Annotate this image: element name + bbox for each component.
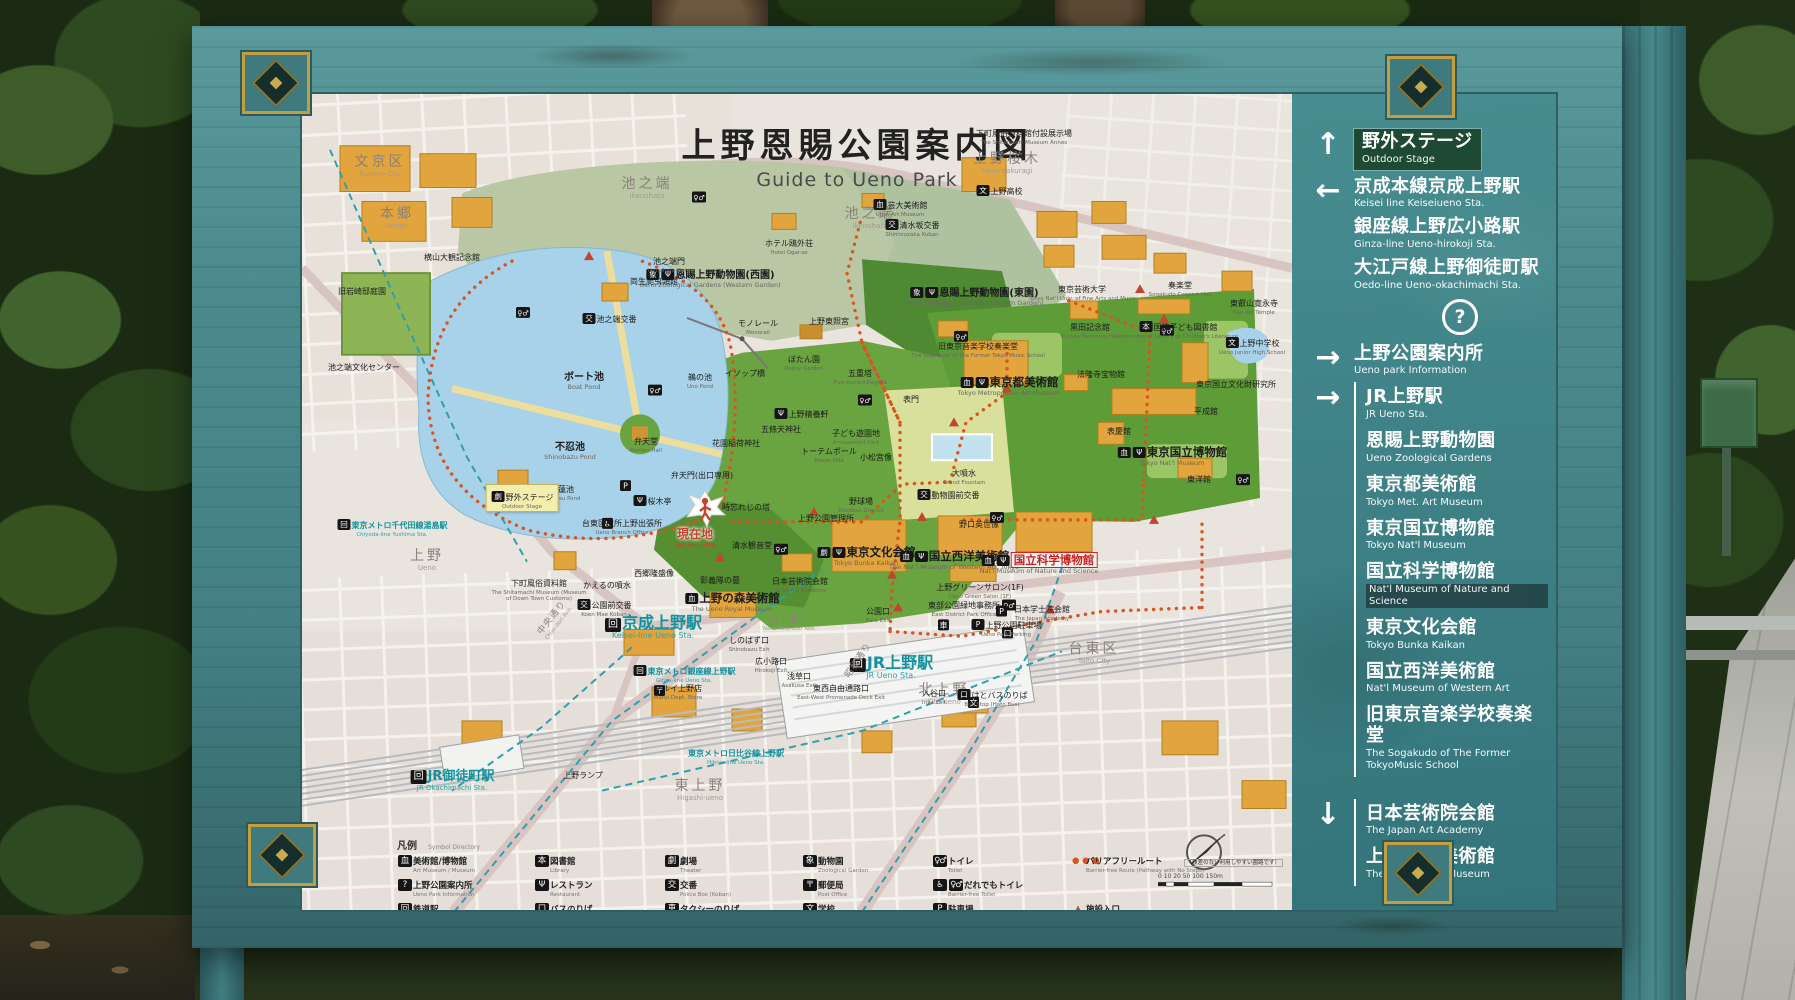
map-label: 文京区 Bunkyo City bbox=[355, 152, 406, 179]
sign-post-right bbox=[1622, 26, 1686, 1000]
map-label: 台東区 Taito City bbox=[1069, 639, 1120, 666]
directory-entry: 東京都美術館 Tokyo Met. Art Museum bbox=[1302, 470, 1548, 514]
directory-entry: ← 京成本線京成上野駅 Keisei line Keiseiueno Sta. bbox=[1302, 175, 1548, 211]
sign-post-left bbox=[200, 944, 244, 1000]
koban-icon: 交 bbox=[886, 219, 899, 230]
destination-name-en: The Japan Art Academy bbox=[1366, 825, 1548, 837]
zoo-icon: 象 bbox=[910, 287, 923, 298]
koban-icon: 交 bbox=[665, 879, 679, 891]
map-label: 不忍池 Shinobazu Pond bbox=[544, 436, 596, 461]
parking-icon: P bbox=[972, 619, 985, 630]
theater-icon: 劇 bbox=[492, 491, 505, 502]
map-label: イソップ橋 bbox=[725, 362, 765, 380]
map-label: 文上野中学校 Ueno Junior High School bbox=[1219, 332, 1285, 356]
destination-name-jp: 上野公園案内所 bbox=[1354, 344, 1548, 365]
museum-icon: 血 bbox=[685, 593, 698, 604]
map-label: Ψ桜木亭 bbox=[633, 490, 672, 508]
directory-entry: 旧東京音楽学校奏楽堂 The Sogakudo of The Former To… bbox=[1302, 700, 1548, 776]
map-label: 清水観音堂 bbox=[732, 534, 772, 552]
map-label: マルイ上野店 Marui Dept. Store bbox=[654, 677, 702, 701]
directory-entry: 大江戸線上野御徒町駅 Oedo-line Ueno-okachimachi St… bbox=[1302, 256, 1548, 292]
map-label: 上野ランプ bbox=[563, 764, 603, 782]
directory-entry: → JR上野駅 JR Ueno Sta. bbox=[1302, 382, 1548, 426]
legend-item: 口バスのりば Bus Stop bbox=[534, 898, 593, 910]
destination-name-en: JR Ueno Sta. bbox=[1366, 409, 1548, 421]
legend-item: 象動物園 Zoological Garden bbox=[802, 850, 868, 874]
map-label: かえるの噴水 bbox=[583, 574, 631, 592]
directory-entry: → 上野公園案内所 Ueno park Information bbox=[1302, 342, 1548, 378]
zoo-icon: 象 bbox=[803, 855, 817, 867]
museum-icon: 血 bbox=[874, 199, 887, 210]
map-label: 本郷 Hongo bbox=[380, 204, 414, 231]
map-label: 文上野高校 bbox=[976, 180, 1023, 198]
map-label: 現在地 You Are Here bbox=[674, 524, 716, 549]
directory-entry: ↑ 野外ステージ Outdoor Stage bbox=[1302, 129, 1548, 170]
map-label: 弁天門(出口専用) bbox=[671, 464, 733, 482]
entrance-icon: ▲ bbox=[1071, 903, 1085, 910]
map-label: 小松宮像 bbox=[860, 446, 892, 464]
destination-name-en: Keisei line Keiseiueno Sta. bbox=[1354, 198, 1548, 210]
directory-entry: 東京文化会館 Tokyo Bunka Kaikan bbox=[1302, 613, 1548, 657]
railing-bar-lower bbox=[1682, 650, 1795, 660]
map-label: 弁天堂 Benten Hall bbox=[630, 430, 662, 454]
map-label: 表門 bbox=[903, 388, 919, 406]
map-label: 時忘れじの塔 bbox=[722, 496, 770, 514]
map-label: 東京国立文化財研究所 bbox=[1196, 373, 1276, 391]
taxi-icon: 車 bbox=[665, 903, 679, 910]
legend-item: 回鉄道駅 Station bbox=[397, 898, 439, 910]
legend-item: 血美術館/博物館 Art Museum / Museum bbox=[397, 850, 475, 874]
sign-panel: ♀♂ ♀♂ ♀♂ ♀♂ ♀♂ ♀♂ ♀♂ ♀♂ ♀♂ ♀♂ P P ♿ 口 車 … bbox=[300, 92, 1558, 912]
map-label: 下町風俗資料館付設展示場 The Shitamachi Museum Annex bbox=[976, 122, 1072, 146]
map-label: 池之端文化センター bbox=[328, 356, 400, 374]
destination-name-jp: 東京国立博物館 bbox=[1366, 519, 1548, 540]
directory-entry: ↓ 日本芸術院会館 The Japan Art Academy bbox=[1302, 799, 1548, 843]
information-icon: ? bbox=[1442, 299, 1478, 335]
information-icon: ? bbox=[398, 879, 412, 891]
restaurant-icon: Ψ bbox=[915, 551, 928, 562]
museum-icon: 血 bbox=[398, 855, 412, 867]
map-label: 旧岩崎邸庭園 bbox=[338, 280, 386, 298]
map-label: 平成館 bbox=[1194, 400, 1218, 418]
train-icon: 回 bbox=[398, 903, 412, 910]
map-label: 旧東京音楽学校奏楽堂 The Sogakudo of The Former To… bbox=[911, 335, 1045, 359]
map-label: 上野桜木 Ueno-sakuragi bbox=[973, 149, 1041, 176]
directory-sidebar: ↑ 野外ステージ Outdoor Stage ← 京成本線京成上野駅 Keise… bbox=[1292, 94, 1556, 910]
destination-name-en: Ueno park Information bbox=[1354, 365, 1548, 377]
map-label: 山下通り Yamashita-dori Ave. bbox=[762, 608, 816, 632]
restaurant-icon: Ψ bbox=[833, 547, 846, 558]
destination-name-en: Tokyo Met. Art Museum bbox=[1366, 497, 1548, 509]
train-icon: 回 bbox=[605, 618, 621, 632]
bus-icon: 口 bbox=[535, 903, 549, 910]
map-label: 血芸大美術館 Univ. Art Museum bbox=[873, 194, 928, 218]
map-label: 五條天神社 bbox=[761, 418, 801, 436]
map-label: 台東区役所上野出張所 Ueno Branch Office bbox=[582, 512, 662, 536]
school-icon: 文 bbox=[977, 185, 990, 196]
legend-item: 本図書館 Library bbox=[534, 850, 576, 874]
theater-icon: 劇 bbox=[665, 855, 679, 867]
frame-ornament-diamond bbox=[1384, 842, 1452, 904]
map-label: 横山大観記念館 bbox=[424, 246, 480, 264]
map-label: 回JR御徒町駅 JR Okachimachi Sta. bbox=[410, 766, 495, 792]
museum-icon: 血 bbox=[960, 377, 973, 388]
direction-arrow-icon: → bbox=[1302, 342, 1354, 374]
map-label: 血Ψ国立科学博物館 Nat'l Museum of Nature and Sci… bbox=[980, 550, 1099, 575]
restaurant-icon: Ψ bbox=[925, 287, 938, 298]
train-icon: 回 bbox=[411, 770, 427, 784]
school-icon: 文 bbox=[803, 903, 817, 910]
map-label: 上野 Ueno bbox=[410, 546, 444, 573]
destination-name-en: The Sogakudo of The Former TokyoMusic Sc… bbox=[1366, 748, 1548, 772]
map-label: P上野公園駐車場 Ueno Park Parking bbox=[971, 614, 1042, 638]
map-label: 血Ψ東京都美術館 Tokyo Metropolitan Art Museum bbox=[958, 372, 1061, 397]
accessible-icon: ♿ bbox=[933, 879, 947, 891]
toilet-icon: ♀♂ bbox=[949, 879, 963, 891]
destination-name-jp: 野外ステージ bbox=[1362, 132, 1473, 153]
legend-item: 車タクシーのりば Taxi Stand bbox=[664, 898, 740, 910]
destination-name-jp: 旧東京音楽学校奏楽堂 bbox=[1366, 705, 1548, 746]
legend-item: ▲施設入口 Entrance bbox=[1070, 898, 1120, 910]
map-label: 交動物園前交番 bbox=[917, 484, 980, 502]
destination-name-jp: 日本芸術院会館 bbox=[1366, 804, 1548, 825]
map-label: 黒田記念館 Kuroda Memorial Hall bbox=[1061, 316, 1120, 340]
frame-ornament-diamond bbox=[242, 52, 310, 114]
destination-name-en: Outdoor Stage bbox=[1362, 154, 1473, 166]
frame-ornament-diamond bbox=[1387, 56, 1455, 118]
legend-item: 文学校 School bbox=[802, 898, 836, 910]
legend-item: ?上野公園案内所 Ueno Park Information bbox=[397, 874, 474, 898]
map-label: 上野公園管理所 bbox=[798, 507, 854, 525]
legend-item: 〒郵便局 Post Office bbox=[802, 874, 847, 898]
frame-ornament-diamond bbox=[248, 824, 316, 886]
theater-icon: 劇 bbox=[818, 547, 831, 558]
restaurant-icon: Ψ bbox=[634, 495, 647, 506]
directory-entry: 東京国立博物館 Tokyo Nat'l Museum bbox=[1302, 514, 1548, 558]
map-panel: ♀♂ ♀♂ ♀♂ ♀♂ ♀♂ ♀♂ ♀♂ ♀♂ ♀♂ ♀♂ P P ♿ 口 車 … bbox=[302, 94, 1292, 910]
directory-entry: 国立西洋美術館 Nat'l Museum of Western Art bbox=[1302, 657, 1548, 701]
destination-name-jp: 東京文化会館 bbox=[1366, 618, 1548, 639]
utility-pole bbox=[1722, 446, 1731, 556]
map-label: 東京芸術大学 Tokyo Nat'l Univ. of Fine Arts an… bbox=[1028, 278, 1135, 302]
sign-shadow bbox=[195, 946, 1625, 1000]
destination-name-jp: JR上野駅 bbox=[1366, 387, 1548, 408]
museum-icon: 血 bbox=[900, 551, 913, 562]
destination-name-jp: 京成本線京成上野駅 bbox=[1354, 177, 1548, 198]
barrier-free-route-icon: ● ● ● bbox=[1071, 855, 1085, 867]
map-label: 入谷口 Iriya Exit bbox=[922, 682, 946, 706]
map-label: 東叡山寛永寺 Kan-eiji Temple bbox=[1230, 292, 1278, 316]
restaurant-icon: Ψ bbox=[997, 555, 1010, 566]
legend-item: 劇劇場 Theater bbox=[664, 850, 701, 874]
destination-name-jp: 国立科学博物館 bbox=[1366, 562, 1548, 583]
direction-arrow-icon: → bbox=[1302, 382, 1354, 414]
map-label: ぼたん園 Peony Garden bbox=[785, 348, 824, 372]
map-label: 回東京メトロ千代田線湯島駅 Chiyoda-line Yushima Sta. bbox=[337, 514, 448, 538]
park-map-signboard: ♀♂ ♀♂ ♀♂ ♀♂ ♀♂ ♀♂ ♀♂ ♀♂ ♀♂ ♀♂ P P ♿ 口 車 … bbox=[192, 26, 1622, 948]
legend-item: ♿♀♂だれでもトイレ Barrier-free Toilet bbox=[932, 874, 1023, 898]
destination-name-en: Nat'l Museum of Nature and Science bbox=[1366, 584, 1548, 608]
direction-arrow-icon: ↓ bbox=[1302, 799, 1354, 831]
map-label: 公園口 Park Exit bbox=[866, 600, 890, 624]
map-label: モノレール Monorail bbox=[738, 312, 778, 336]
direction-arrow-icon: ↑ bbox=[1302, 129, 1354, 161]
directory-entry: ? bbox=[1302, 297, 1548, 337]
map-label: 血Ψ東京国立博物館 Tokyo Nat'l Museum bbox=[1117, 442, 1228, 467]
map-label: 下町風俗資料館 The Shitamachi Museum (Museum of… bbox=[491, 572, 587, 602]
museum-icon: 血 bbox=[982, 555, 995, 566]
map-label: 池之端 Ikenohata bbox=[622, 174, 673, 201]
map-label: 象Ψ恩賜上野動物園(東園) Ueno Zoological Gardens (E… bbox=[904, 282, 1043, 307]
destination-name-en: Ginza-line Ueno-hirokoji Sta. bbox=[1354, 239, 1548, 251]
legend-item: Ψレストラン Restaurant bbox=[534, 874, 593, 898]
legend-item: ● ● ●バリアフリールート 〔段差のない利用しやすい園路です〕 Barrier… bbox=[1070, 850, 1283, 874]
map-label: 五重塔 Five-storied Pagoda bbox=[833, 362, 887, 386]
destination-name-jp: 国立西洋美術館 bbox=[1366, 662, 1548, 683]
destination-name-jp: 東京都美術館 bbox=[1366, 475, 1548, 496]
school-icon: 文 bbox=[1226, 337, 1239, 348]
map-label: 表慶館 bbox=[1107, 420, 1131, 438]
destination-name-en: Tokyo Nat'l Museum bbox=[1366, 540, 1548, 552]
map-label: 両生爬虫類館 bbox=[630, 270, 678, 288]
destination-name-en: Ueno Zoological Gardens bbox=[1366, 453, 1548, 465]
map-label: 花園稲荷神社 bbox=[712, 432, 760, 450]
map-label: 鵜の池 Uno Pond bbox=[687, 366, 713, 390]
map-label: 東上野 Higashi-ueno bbox=[675, 776, 726, 803]
parking-icon: P bbox=[933, 903, 947, 910]
map-label: 交池之端交番 bbox=[582, 308, 637, 326]
direction-arrow-icon: ← bbox=[1302, 175, 1354, 207]
destination-name-jp: 大江戸線上野御徒町駅 bbox=[1354, 258, 1548, 279]
destination-name-jp: 銀座線上野広小路駅 bbox=[1354, 217, 1548, 238]
restaurant-icon: Ψ bbox=[1133, 447, 1146, 458]
directory-entry: 国立科学博物館 Nat'l Museum of Nature and Scien… bbox=[1302, 557, 1548, 613]
map-label: 東洋館 bbox=[1187, 468, 1211, 486]
map-label: 法隆寺宝物館 bbox=[1077, 363, 1125, 381]
destination-name-en: Oedo-line Ueno-okachimachi Sta. bbox=[1354, 280, 1548, 292]
legend-item: P駐車場 Parking bbox=[932, 898, 974, 910]
map-label: ホテル鴎外荘 Hotel Ogai-so bbox=[765, 232, 813, 256]
map-label: 西郷隆盛像 bbox=[634, 562, 674, 580]
utility-box bbox=[1700, 378, 1758, 448]
map-label: 日本芸術院会館 Japan Art Academy bbox=[772, 570, 828, 594]
map-label: 大噴水 Grand Fountain bbox=[943, 462, 985, 486]
restaurant-icon: Ψ bbox=[975, 377, 988, 388]
map-label: 回京成上野駅 Keisei-line Ueno Sta. bbox=[604, 614, 702, 641]
post-icon: 〒 bbox=[803, 879, 817, 891]
restaurant-icon: Ψ bbox=[535, 879, 549, 891]
museum-icon: 血 bbox=[1118, 447, 1131, 458]
map-label: 上野東照宮 bbox=[809, 310, 849, 328]
railing-bar bbox=[1682, 616, 1795, 630]
koban-icon: 交 bbox=[918, 489, 931, 500]
map-label: 奏楽堂 Sogakudo Concert Hall bbox=[1149, 274, 1212, 298]
koban-icon: 交 bbox=[583, 313, 596, 324]
map-label: 口はとバスのりば Bus Stop (Hato Bus) bbox=[957, 684, 1028, 708]
directory-entry: 恩賜上野動物園 Ueno Zoological Gardens bbox=[1302, 426, 1548, 470]
library-icon: 本 bbox=[535, 855, 549, 867]
destination-name-en: Tokyo Bunka Kaikan bbox=[1366, 640, 1548, 652]
map-label: 彰義隊の墓 bbox=[700, 569, 740, 587]
map-label: 野口英世像 bbox=[959, 513, 999, 531]
bus-icon: 口 bbox=[958, 689, 971, 700]
legend-item: 交交番 Police Box (Koban) bbox=[664, 874, 731, 898]
destination-name-jp: 恩賜上野動物園 bbox=[1366, 431, 1548, 452]
legend-item: ♀♂トイレ Toilet bbox=[932, 850, 974, 874]
train-icon: 回 bbox=[634, 665, 647, 676]
toilet-icon: ♀♂ bbox=[933, 855, 947, 867]
map-label: ボート池 Boat Pond bbox=[564, 366, 604, 391]
map-label: 劇野外ステージ Outdoor Stage bbox=[486, 484, 559, 512]
map-label: 東京メトロ日比谷線上野駅 Hibiya-line Ueno Sta. bbox=[688, 742, 784, 766]
destination-name-en: Nat'l Museum of Western Art bbox=[1366, 683, 1548, 695]
map-label: トーテムポール Totem Pole bbox=[801, 440, 857, 464]
library-icon: 本 bbox=[1139, 321, 1152, 332]
train-icon: 回 bbox=[338, 519, 351, 530]
directory-entry: 銀座線上野広小路駅 Ginza-line Ueno-hirokoji Sta. bbox=[1302, 215, 1548, 251]
